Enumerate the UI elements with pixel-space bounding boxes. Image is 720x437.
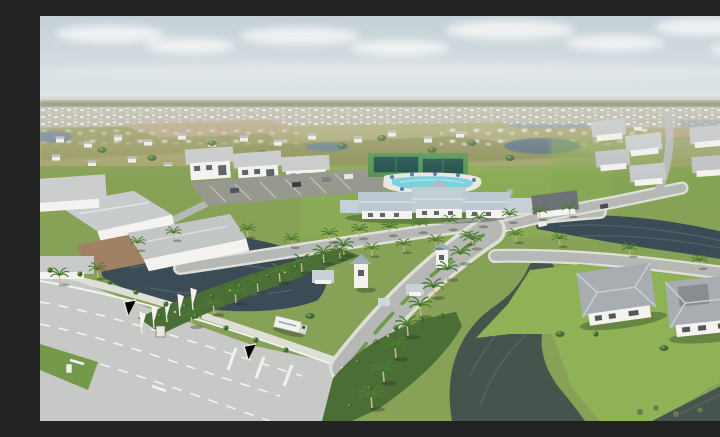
aerial-photo xyxy=(40,16,720,421)
median-sign xyxy=(66,364,72,373)
entry-sign xyxy=(156,326,165,337)
atmospheric-haze xyxy=(40,98,720,178)
